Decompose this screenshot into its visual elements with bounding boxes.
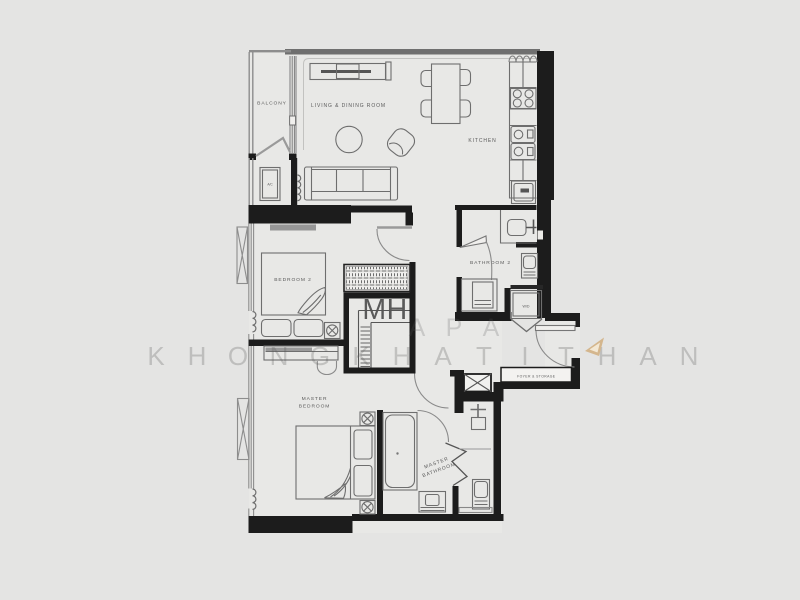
svg-text:N: N: [680, 341, 699, 371]
svg-text:KITCHEN: KITCHEN: [468, 138, 496, 144]
svg-text:A: A: [639, 341, 657, 371]
svg-text:BEDROOM 2: BEDROOM 2: [274, 277, 311, 283]
svg-text:A: A: [483, 314, 500, 342]
svg-text:FOYER & STORAGE: FOYER & STORAGE: [517, 374, 556, 378]
svg-text:A: A: [434, 341, 452, 371]
svg-text:H: H: [393, 341, 412, 371]
svg-text:O: O: [228, 341, 248, 371]
svg-text:P: P: [446, 314, 463, 342]
svg-text:T: T: [558, 341, 574, 371]
svg-text:MASTER: MASTER: [302, 396, 328, 402]
svg-text:A/C: A/C: [267, 183, 273, 187]
svg-text:LIVING & DINING ROOM: LIVING & DINING ROOM: [311, 103, 386, 109]
svg-text:K: K: [352, 341, 370, 371]
svg-text:N: N: [270, 341, 289, 371]
svg-text:T: T: [476, 341, 492, 371]
svg-text:I: I: [521, 341, 528, 371]
svg-text:BEDROOM: BEDROOM: [299, 404, 331, 410]
svg-text:BALCONY: BALCONY: [257, 101, 287, 107]
svg-text:H: H: [188, 341, 207, 371]
svg-text:K: K: [147, 341, 165, 371]
svg-text:A: A: [409, 314, 426, 342]
svg-text:G: G: [310, 341, 330, 371]
svg-text:W/D: W/D: [523, 305, 530, 309]
svg-text:BATHROOM 2: BATHROOM 2: [470, 260, 511, 266]
